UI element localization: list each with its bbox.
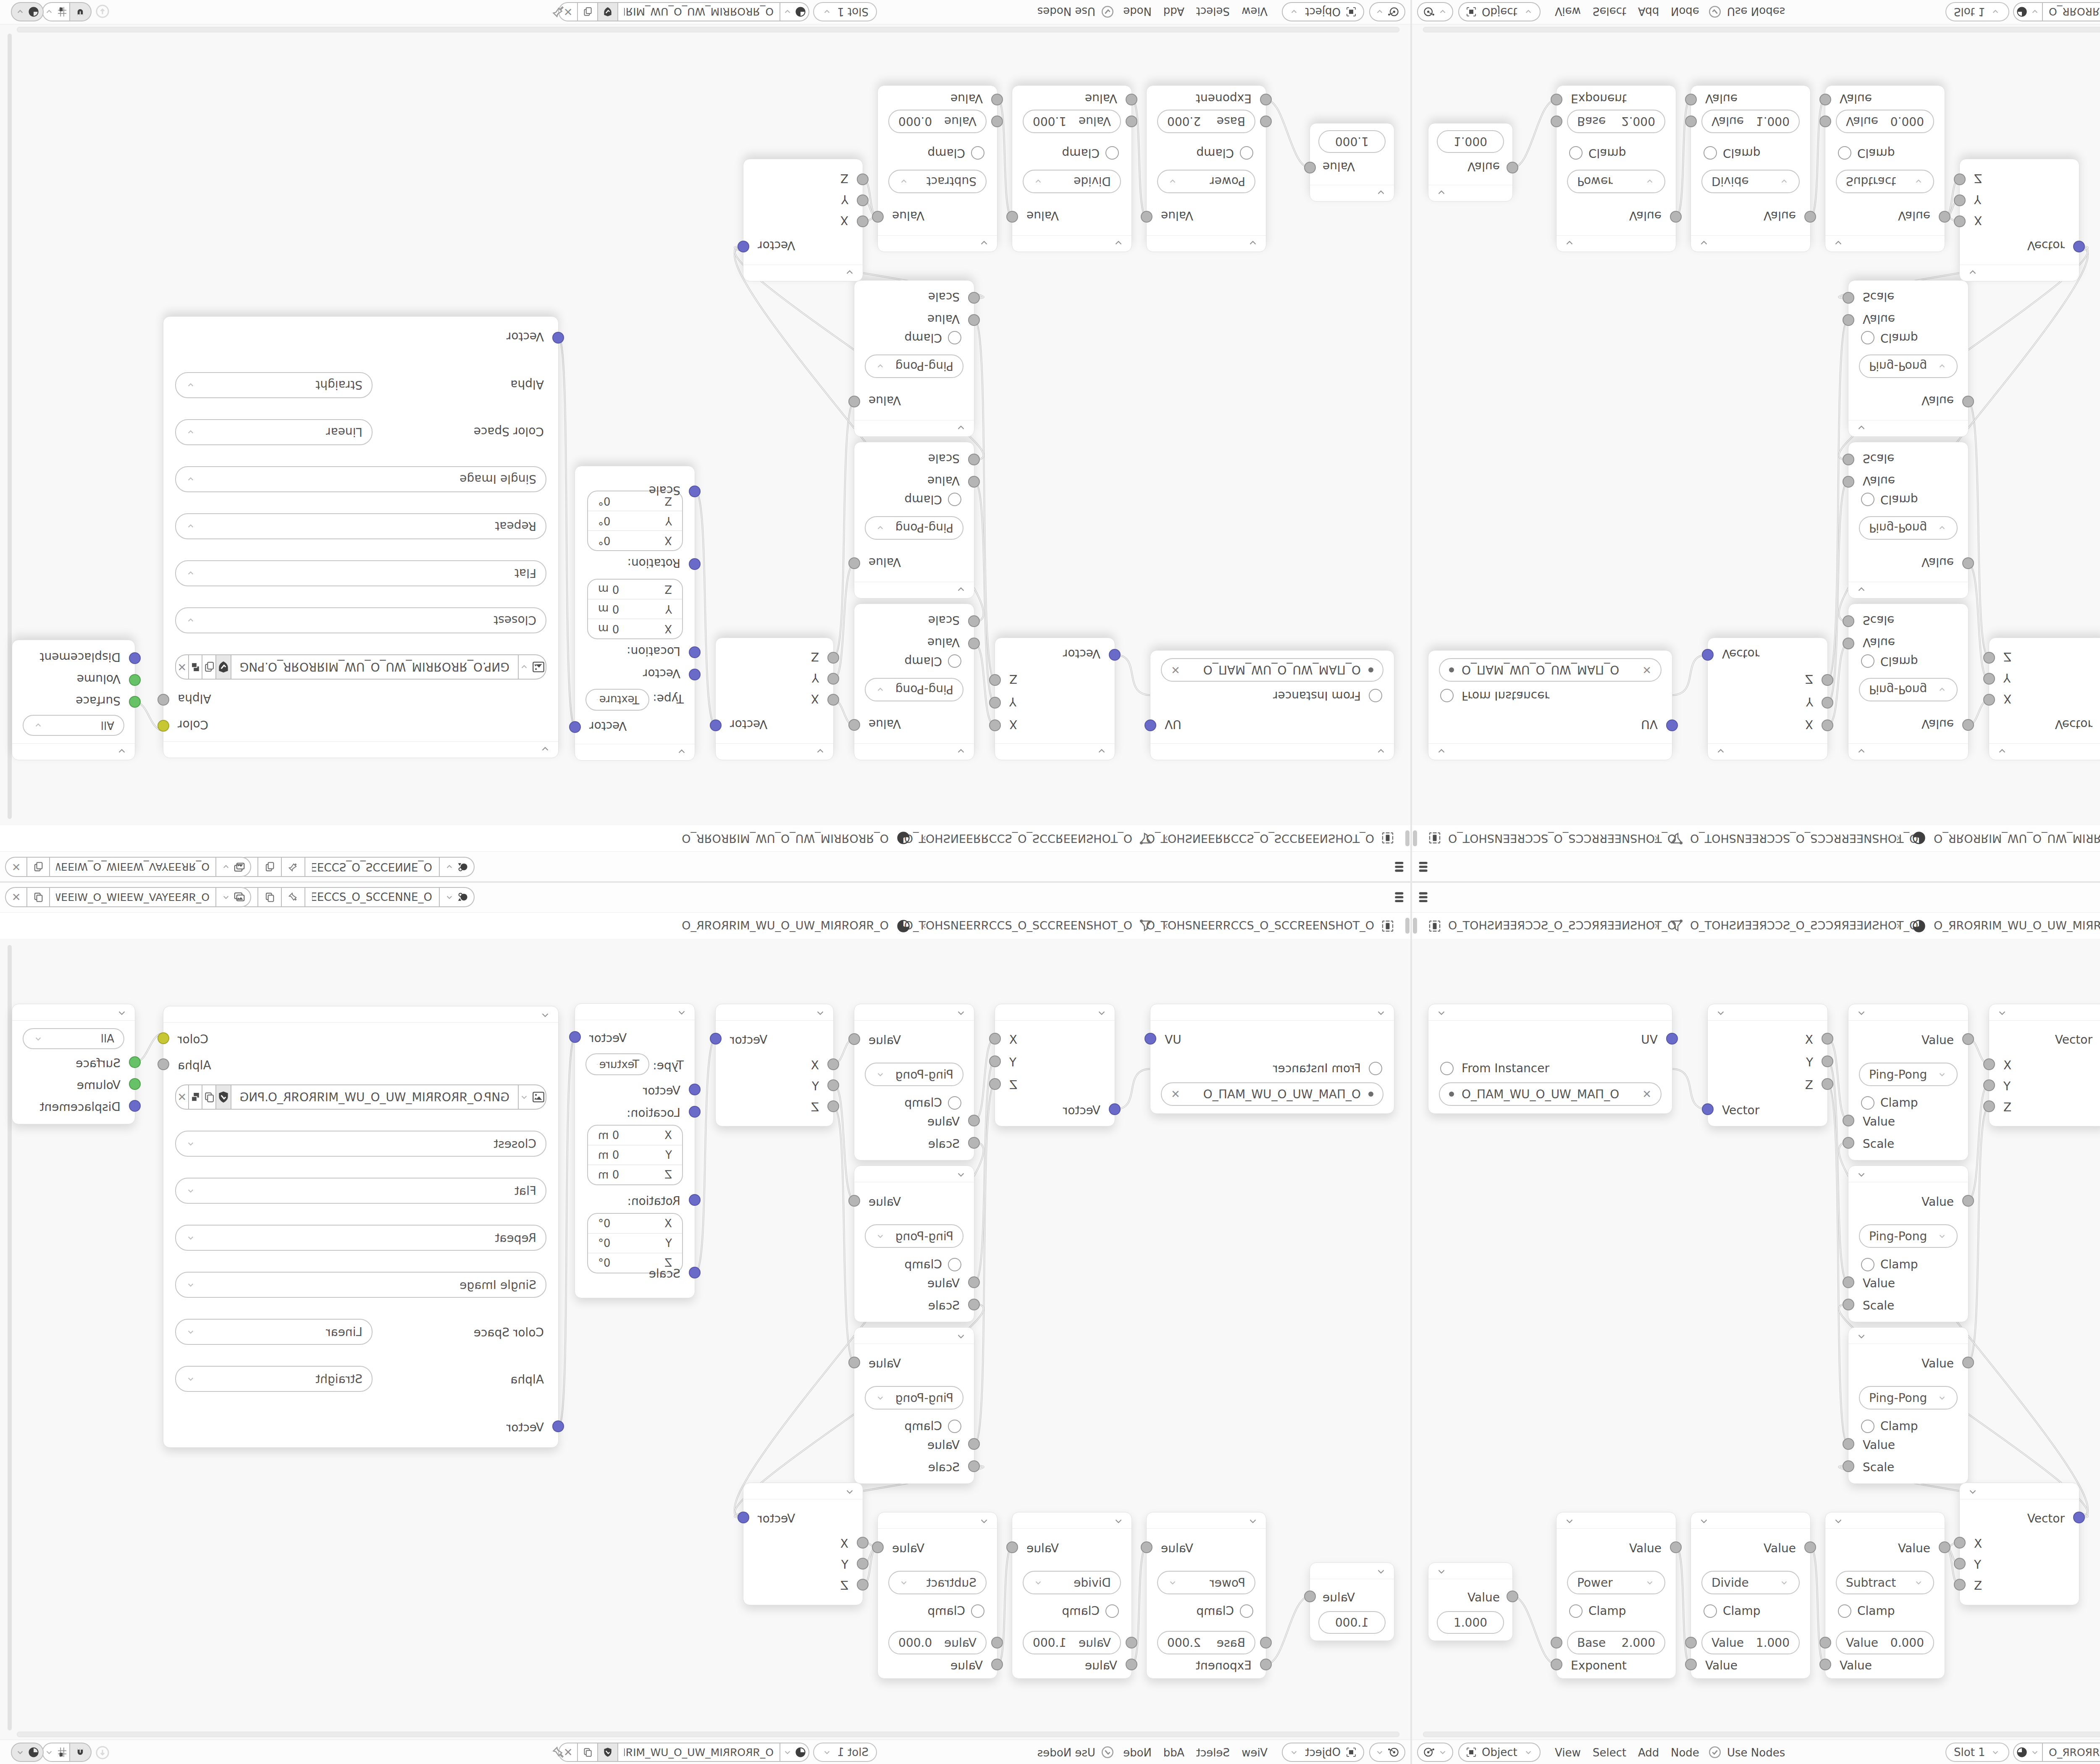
color-space-dropdown[interactable]: Linear [175,1319,373,1345]
surface-input-socket[interactable] [129,696,141,708]
x-input-socket[interactable] [827,694,839,706]
clamp-row[interactable]: Clamp [904,1257,961,1271]
operation-dropdown[interactable]: Ping-Pong [865,1224,963,1248]
collapse-chevron-icon[interactable] [116,1008,127,1018]
value-node[interactable]: Value 1.000 [1428,123,1513,202]
value-field[interactable]: Value1.000 [1023,110,1121,133]
node-header[interactable] [1147,1512,1266,1529]
node-header[interactable] [1848,1328,1968,1344]
z-input-socket[interactable] [1954,173,1966,185]
z-input-socket[interactable] [827,1100,839,1112]
x-output-socket[interactable] [989,719,1001,731]
value-output-socket[interactable] [848,557,860,569]
collapse-chevron-icon[interactable] [676,746,687,757]
node-header[interactable] [1825,1512,1945,1529]
clamp-row[interactable]: Clamp [904,493,961,507]
z-output-socket[interactable] [1822,674,1833,686]
collapse-chevron-icon[interactable] [1833,1516,1844,1527]
collapse-chevron-icon[interactable] [1247,1516,1258,1527]
clamp-row[interactable]: Clamp [904,1096,961,1110]
value-field[interactable]: 1.000 [1318,1611,1386,1634]
combine-xyz-node-1[interactable]: Vector X Y Z [1989,638,2100,760]
clamp-checkbox[interactable] [1861,331,1874,345]
clamp-checkbox[interactable] [948,1258,961,1271]
value-field[interactable]: Value1.000 [1023,1631,1121,1654]
value-field[interactable]: Value0.000 [1836,110,1934,133]
value-output-socket[interactable] [1006,211,1018,223]
collapse-chevron-icon[interactable] [540,743,551,754]
value-output-socket[interactable] [1141,211,1152,223]
collapse-chevron-icon[interactable] [1113,237,1124,248]
clamp-row[interactable]: Clamp [1861,654,1918,668]
location-input-socket[interactable] [689,1106,701,1118]
value-output-socket[interactable] [872,211,884,223]
value-field[interactable]: Value1.000 [1701,1631,1800,1654]
location-input-socket[interactable] [689,646,701,658]
operation-dropdown[interactable]: Ping-Pong [865,1063,963,1086]
alpha-mode-dropdown[interactable]: Straight [175,372,373,398]
math-subtract-node[interactable]: Value Subtract Clamp Value0.000 Value [877,1512,997,1679]
rotation-x-field[interactable]: X0° [588,531,682,550]
math-power-node[interactable]: Value Power Clamp Base2.000 Exponent [1556,1512,1676,1679]
clamp-checkbox[interactable] [948,655,961,668]
node-header[interactable] [1848,420,1968,436]
from-instancer-checkbox[interactable] [1369,689,1382,703]
displacement-input-socket[interactable] [129,652,141,664]
operation-dropdown[interactable]: Subtract [1836,170,1934,193]
value-field-input-socket[interactable] [1819,115,1831,127]
value-output-socket[interactable] [1304,1591,1316,1602]
node-header[interactable] [1012,1512,1131,1529]
node-header[interactable] [1848,1004,1968,1021]
node-header[interactable] [1557,1512,1676,1529]
value-field[interactable]: Value0.000 [888,110,987,133]
clamp-checkbox[interactable] [1838,1604,1851,1618]
alpha-mode-dropdown[interactable]: Straight [175,1366,373,1392]
collapse-chevron-icon[interactable] [955,1331,966,1342]
from-instancer-row[interactable]: From Instancer [1273,1061,1382,1075]
clamp-checkbox[interactable] [1240,1604,1253,1618]
node-header[interactable] [163,1006,558,1023]
scale-input-socket[interactable] [1843,454,1854,465]
scale-input-socket[interactable] [1843,1137,1854,1149]
rotation-xyz-fields[interactable]: X0° Y0° Z0° [587,491,683,551]
clamp-row[interactable]: Clamp [904,1419,961,1433]
y-input-socket[interactable] [1954,194,1966,206]
y-input-socket[interactable] [1954,1558,1966,1570]
x-input-socket[interactable] [857,215,869,227]
collapse-chevron-icon[interactable] [1715,1008,1726,1018]
x-input-socket[interactable] [1983,1058,1995,1070]
collapse-chevron-icon[interactable] [1564,1516,1575,1527]
clamp-checkbox[interactable] [971,1604,984,1618]
image-unlink-button[interactable]: ✕ [175,654,189,680]
math-pingpong-node-3[interactable]: Value Ping-Pong Clamp Value Scale [1848,1327,1969,1484]
value-output-socket[interactable] [1939,1541,1950,1553]
rotation-y-field[interactable]: Y0° [588,511,682,531]
image-texture-node[interactable]: Color Alpha GИP.O_ЯROЯRIM_WU_O_UW_MIЯROЯ… [163,1006,559,1448]
uv-map-name-field[interactable]: O_ПAM_WU_O_UW_MAП_O ✕ [1161,1082,1383,1106]
node-header[interactable] [1310,1563,1394,1579]
combine-xyz-node-2[interactable]: Vector X Y Z [1959,159,2079,281]
exponent-input-socket[interactable] [1260,1659,1272,1670]
vector-input-socket[interactable] [689,669,701,680]
vector-output-socket[interactable] [569,721,581,733]
value-input-socket[interactable] [1843,314,1854,326]
y-output-socket[interactable] [1822,697,1833,709]
clamp-row[interactable]: Clamp [1838,1604,1895,1618]
value-output-socket[interactable] [848,396,860,407]
base-input-socket[interactable] [1260,115,1272,127]
collapse-chevron-icon[interactable] [815,745,826,756]
collapse-chevron-icon[interactable] [1856,745,1867,756]
node-header[interactable] [743,265,863,281]
clamp-checkbox[interactable] [1704,1604,1717,1618]
value-output-socket[interactable] [1962,396,1974,407]
clamp-checkbox[interactable] [1569,147,1583,160]
node-header[interactable] [1960,265,2079,281]
clamp-checkbox[interactable] [948,1420,961,1433]
image-pack-button[interactable] [189,654,202,680]
rotation-input-socket[interactable] [689,558,701,570]
z-output-socket[interactable] [989,1078,1001,1090]
value-output-socket[interactable] [1507,162,1518,173]
z-input-socket[interactable] [1983,652,1995,664]
math-power-node[interactable]: Value Power Clamp Base2.000 Exponent [1146,1512,1266,1679]
collapse-chevron-icon[interactable] [815,1008,826,1018]
clamp-checkbox[interactable] [1861,493,1874,507]
node-header[interactable] [1012,235,1131,252]
close-icon[interactable]: ✕ [1171,664,1180,676]
collapse-chevron-icon[interactable] [1698,1516,1709,1527]
location-z-field[interactable]: Z0 m [588,1165,682,1184]
node-header[interactable] [1848,582,1968,598]
volume-input-socket[interactable] [129,1078,141,1090]
node-header[interactable] [1960,1483,2079,1499]
z-input-socket[interactable] [857,173,869,185]
math-power-node[interactable]: Value Power Clamp Base2.000 Exponent [1556,85,1676,252]
from-instancer-checkbox[interactable] [1440,689,1454,703]
image-unlink-button[interactable]: ✕ [175,1084,189,1110]
clamp-checkbox[interactable] [1569,1604,1583,1618]
node-header[interactable] [878,1512,997,1529]
image-new-button[interactable] [202,1084,216,1110]
value-output-socket[interactable] [1962,1357,1974,1368]
value-input-socket[interactable] [1126,1659,1137,1670]
vector-output-socket[interactable] [2073,241,2085,252]
location-y-field[interactable]: Y0 m [588,599,682,619]
close-icon[interactable]: ✕ [1171,1088,1180,1100]
clamp-row[interactable]: Clamp [904,331,961,345]
separate-xyz-node[interactable]: X Y Z Vector [1707,1004,1828,1126]
operation-dropdown[interactable]: Ping-Pong [865,678,963,701]
clamp-checkbox[interactable] [1105,1604,1119,1618]
scale-input-socket[interactable] [689,1267,701,1278]
operation-dropdown[interactable]: Power [1157,170,1255,193]
source-dropdown[interactable]: Single Image [175,466,546,492]
alpha-output-socket[interactable] [157,1058,169,1070]
vector-output-socket[interactable] [2073,1512,2085,1523]
clamp-row[interactable]: Clamp [1861,1257,1918,1271]
value-input-socket[interactable] [1685,1659,1697,1670]
vector-input-socket[interactable] [1702,1103,1714,1115]
value-node[interactable]: Value 1.000 [1310,123,1394,202]
value-output-socket[interactable] [848,719,860,731]
collapse-chevron-icon[interactable] [1375,1566,1386,1577]
collapse-chevron-icon[interactable] [844,267,855,278]
operation-dropdown[interactable]: Power [1567,170,1665,193]
y-input-socket[interactable] [827,673,839,685]
fake-user-button[interactable] [216,654,231,680]
value-input-socket[interactable] [1843,1115,1854,1126]
operation-dropdown[interactable]: Ping-Pong [1859,516,1958,540]
scale-input-socket[interactable] [1843,1460,1854,1472]
math-pingpong-node-1[interactable]: Value Ping-Pong Clamp Value Scale [1848,1004,1969,1160]
value-field-input-socket[interactable] [991,115,1003,127]
node-header[interactable] [1691,1512,1810,1529]
collapse-chevron-icon[interactable] [1856,584,1867,595]
displacement-input-socket[interactable] [129,1100,141,1112]
value-output-socket[interactable] [1141,1541,1152,1553]
close-icon[interactable]: ✕ [1642,664,1651,676]
value-input-socket[interactable] [1685,94,1697,105]
value-input-socket[interactable] [968,314,980,326]
node-header[interactable] [743,1483,863,1499]
uv-map-node[interactable]: UV From Instancer O_ПAM_WU_O_UW_MAП_O ✕ [1150,1004,1394,1114]
value-output-socket[interactable] [848,1033,860,1045]
value-output-socket[interactable] [1962,719,1974,731]
operation-dropdown[interactable]: Subtract [888,170,987,193]
collapse-chevron-icon[interactable] [1967,267,1978,278]
node-header[interactable] [1147,235,1266,252]
math-pingpong-node-2[interactable]: Value Ping-Pong Clamp Value Scale [854,1165,974,1322]
value-input-socket[interactable] [1843,638,1854,649]
clamp-row[interactable]: Clamp [1196,146,1253,160]
y-input-socket[interactable] [857,1558,869,1570]
scale-input-socket[interactable] [1843,615,1854,627]
target-dropdown[interactable]: All [23,1028,124,1049]
node-header[interactable] [854,1004,974,1021]
value-output-socket[interactable] [1006,1541,1018,1553]
collapse-chevron-icon[interactable] [1856,422,1867,433]
collapse-chevron-icon[interactable] [1436,1008,1447,1018]
value-output-socket[interactable] [1507,1591,1518,1602]
image-new-button[interactable] [202,654,216,680]
base-field[interactable]: Base2.000 [1567,1631,1665,1654]
scale-input-socket[interactable] [968,1137,980,1149]
combine-xyz-node-1[interactable]: Vector X Y Z [1989,1004,2100,1126]
clamp-checkbox[interactable] [948,331,961,345]
node-header[interactable] [1825,235,1945,252]
collapse-chevron-icon[interactable] [1247,237,1258,248]
z-output-socket[interactable] [1822,1078,1833,1090]
combine-xyz-node-1[interactable]: Vector X Y Z [715,1004,834,1126]
collapse-chevron-icon[interactable] [1096,1008,1107,1018]
clamp-row[interactable]: Clamp [1861,493,1918,507]
vector-input-socket[interactable] [689,1084,701,1095]
x-input-socket[interactable] [1954,1537,1966,1549]
node-header[interactable] [1989,1004,2100,1021]
clamp-row[interactable]: Clamp [1196,1604,1253,1618]
y-output-socket[interactable] [989,697,1001,709]
material-output-node[interactable]: All Surface Volume Displacement [12,640,135,760]
math-pingpong-node-1[interactable]: Value Ping-Pong Clamp Value Scale [1848,604,1969,760]
collapse-chevron-icon[interactable] [1997,1008,2008,1018]
collapse-chevron-icon[interactable] [1833,237,1844,248]
scale-input-socket[interactable] [1843,292,1854,304]
value-output-socket[interactable] [872,1541,884,1553]
value-field[interactable]: 1.000 [1437,1611,1504,1634]
collapse-chevron-icon[interactable] [116,745,127,756]
vector-input-socket[interactable] [552,1420,564,1432]
collapse-chevron-icon[interactable] [979,1516,990,1527]
value-field[interactable]: Value1.000 [1701,110,1800,133]
volume-input-socket[interactable] [129,674,141,686]
y-input-socket[interactable] [827,1079,839,1091]
value-output-socket[interactable] [1939,211,1950,223]
math-pingpong-node-3[interactable]: Value Ping-Pong Clamp Value Scale [1848,280,1969,437]
value-field[interactable]: Value0.000 [1836,1631,1934,1654]
node-header[interactable] [1428,1563,1512,1579]
uv-map-node[interactable]: UV From Instancer O_ПAM_WU_O_UW_MAП_O ✕ [1428,650,1672,760]
operation-dropdown[interactable]: Ping-Pong [1859,1224,1958,1248]
scale-input-socket[interactable] [968,454,980,465]
projection-dropdown[interactable]: Flat [175,560,546,586]
x-input-socket[interactable] [857,1537,869,1549]
scale-input-socket[interactable] [968,615,980,627]
extension-dropdown[interactable]: Repeat [175,1225,546,1251]
clamp-row[interactable]: Clamp [1838,146,1895,160]
clamp-checkbox[interactable] [948,493,961,507]
z-input-socket[interactable] [1954,1579,1966,1591]
math-pingpong-node-3[interactable]: Value Ping-Pong Clamp Value Scale [854,1327,974,1484]
base-field[interactable]: Base2.000 [1157,1631,1255,1654]
value-output-socket[interactable] [848,1195,860,1207]
value-field[interactable]: 1.000 [1437,130,1504,153]
vector-output-socket[interactable] [569,1031,581,1043]
color-output-socket[interactable] [157,720,169,732]
math-divide-node[interactable]: Value Divide Clamp Value1.000 Value [1012,85,1132,252]
from-instancer-row[interactable]: From Instancer [1440,689,1549,703]
value-output-socket[interactable] [1962,557,1974,569]
vector-input-socket[interactable] [1109,649,1121,661]
from-instancer-row[interactable]: From Instancer [1273,689,1382,703]
operation-dropdown[interactable]: Ping-Pong [1859,678,1958,701]
separate-xyz-node[interactable]: X Y Z Vector [995,638,1115,760]
operation-dropdown[interactable]: Ping-Pong [865,1386,963,1410]
node-header[interactable] [995,743,1115,760]
math-pingpong-node-3[interactable]: Value Ping-Pong Clamp Value Scale [854,280,974,437]
value-field[interactable]: 1.000 [1318,130,1386,153]
math-pingpong-node-2[interactable]: Value Ping-Pong Clamp Value Scale [1848,442,1969,598]
value-input-socket[interactable] [1843,476,1854,488]
collapse-chevron-icon[interactable] [1564,237,1575,248]
image-browse-button[interactable] [518,654,546,680]
node-header[interactable] [854,420,974,436]
node-header[interactable] [854,1328,974,1344]
value-field-input-socket[interactable] [1126,1637,1137,1648]
exponent-input-socket[interactable] [1260,94,1272,105]
clamp-checkbox[interactable] [1861,1420,1874,1433]
y-output-socket[interactable] [1822,1055,1833,1067]
operation-dropdown[interactable]: Ping-Pong [1859,1386,1958,1410]
clamp-checkbox[interactable] [1861,1096,1874,1110]
value-input-socket[interactable] [968,1276,980,1288]
clamp-row[interactable]: Clamp [927,1604,984,1618]
collapse-chevron-icon[interactable] [1967,1486,1978,1497]
node-header[interactable] [1708,1004,1827,1021]
extension-dropdown[interactable]: Repeat [175,513,546,539]
node-header[interactable] [575,744,695,760]
collapse-chevron-icon[interactable] [1375,187,1386,198]
operation-dropdown[interactable]: Power [1157,1571,1255,1594]
z-input-socket[interactable] [1983,1100,1995,1112]
base-field[interactable]: Base2.000 [1157,110,1255,133]
clamp-row[interactable]: Clamp [1569,146,1626,160]
fake-user-button[interactable] [216,1084,231,1110]
scale-input-socket[interactable] [1843,1299,1854,1310]
value-field-input-socket[interactable] [1685,1637,1697,1648]
uv-map-name-field[interactable]: O_ПAM_WU_O_UW_MAП_O ✕ [1161,658,1383,682]
interpolation-dropdown[interactable]: Closest [175,1131,546,1157]
y-output-socket[interactable] [989,1055,1001,1067]
type-dropdown[interactable]: Texture [585,1053,649,1075]
node-header[interactable] [854,582,974,598]
collapse-chevron-icon[interactable] [955,1008,966,1018]
image-pack-button[interactable] [189,1084,202,1110]
uv-output-socket[interactable] [1144,1033,1156,1045]
z-input-socket[interactable] [827,652,839,664]
location-xyz-fields[interactable]: X0 m Y0 m Z0 m [587,579,683,639]
value-field[interactable]: Value0.000 [888,1631,987,1654]
combine-xyz-node-2[interactable]: Vector X Y Z [1959,1483,2079,1605]
value-field-input-socket[interactable] [1126,115,1137,127]
collapse-chevron-icon[interactable] [844,1486,855,1497]
clamp-row[interactable]: Clamp [1062,1604,1119,1618]
vector-input-socket[interactable] [552,332,564,344]
alpha-output-socket[interactable] [157,694,169,706]
combine-xyz-node-2[interactable]: Vector X Y Z [743,1483,863,1605]
source-dropdown[interactable]: Single Image [175,1272,546,1298]
node-header[interactable] [1848,743,1968,760]
clamp-row[interactable]: Clamp [1861,1096,1918,1110]
node-header[interactable] [995,1004,1115,1021]
vector-output-socket[interactable] [738,241,749,252]
projection-dropdown[interactable]: Flat [175,1178,546,1204]
operation-dropdown[interactable]: Subtract [1836,1571,1934,1594]
math-pingpong-node-2[interactable]: Value Ping-Pong Clamp Value Scale [1848,1165,1969,1322]
value-node[interactable]: Value 1.000 [1310,1562,1394,1641]
collapse-chevron-icon[interactable] [1856,1331,1867,1342]
location-x-field[interactable]: X0 m [588,619,682,638]
operation-dropdown[interactable]: Ping-Pong [1859,1063,1958,1086]
math-divide-node[interactable]: Value Divide Clamp Value1.000 Value [1012,1512,1132,1679]
vector-output-socket[interactable] [710,719,722,731]
value-input-socket[interactable] [968,638,980,649]
close-icon[interactable]: ✕ [1642,1088,1651,1100]
clamp-checkbox[interactable] [971,147,984,160]
scale-input-socket[interactable] [968,292,980,304]
operation-dropdown[interactable]: Divide [1701,1571,1800,1594]
location-x-field[interactable]: X0 m [588,1126,682,1145]
rotation-x-field[interactable]: X0° [588,1214,682,1233]
z-input-socket[interactable] [857,1579,869,1591]
value-input-socket[interactable] [1843,1276,1854,1288]
node-header[interactable] [854,743,974,760]
collapse-chevron-icon[interactable] [955,584,966,595]
x-output-socket[interactable] [1822,719,1833,731]
clamp-checkbox[interactable] [1240,147,1253,160]
